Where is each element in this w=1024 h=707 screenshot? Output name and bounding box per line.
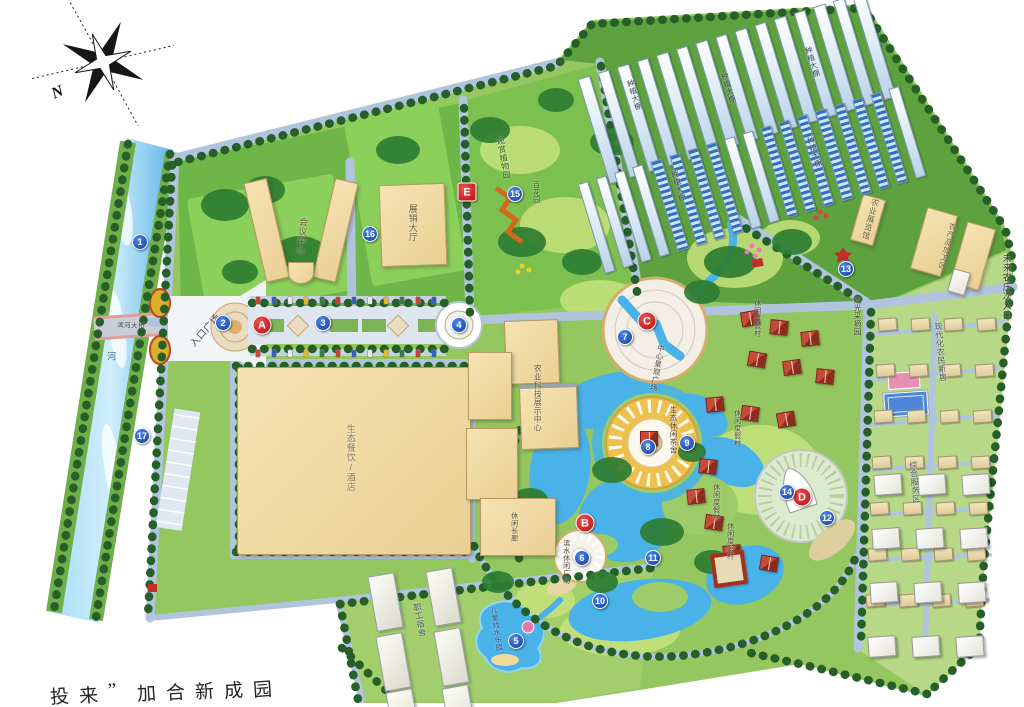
site-plan-map: 会议中心展销大厅入口广场生态餐饮/酒店农业科技展示中心种植大棚种植大棚种植大棚种… <box>0 0 1024 707</box>
marker-12[interactable]: 12 <box>819 510 835 526</box>
marker-14[interactable]: 14 <box>779 484 795 500</box>
marker-C[interactable]: C <box>638 312 657 331</box>
marker-4[interactable]: 4 <box>451 317 467 333</box>
marker-3[interactable]: 3 <box>315 315 331 331</box>
marker-8[interactable]: 8 <box>640 439 656 455</box>
marker-1[interactable]: 1 <box>132 234 148 250</box>
marker-7[interactable]: 7 <box>617 329 633 345</box>
marker-2[interactable]: 2 <box>215 315 231 331</box>
marker-B[interactable]: B <box>576 514 595 533</box>
marker-13[interactable]: 13 <box>838 261 854 277</box>
marker-17[interactable]: 17 <box>134 428 150 444</box>
marker-5[interactable]: 5 <box>508 633 524 649</box>
marker-6[interactable]: 6 <box>574 550 590 566</box>
marker-9[interactable]: 9 <box>679 435 695 451</box>
marker-A[interactable]: A <box>253 316 272 335</box>
marker-D[interactable]: D <box>793 488 812 507</box>
marker-E[interactable]: E <box>458 183 477 202</box>
marker-16[interactable]: 16 <box>362 226 378 242</box>
marker-15[interactable]: 15 <box>507 186 523 202</box>
marker-10[interactable]: 10 <box>592 593 608 609</box>
marker-11[interactable]: 11 <box>645 550 661 566</box>
